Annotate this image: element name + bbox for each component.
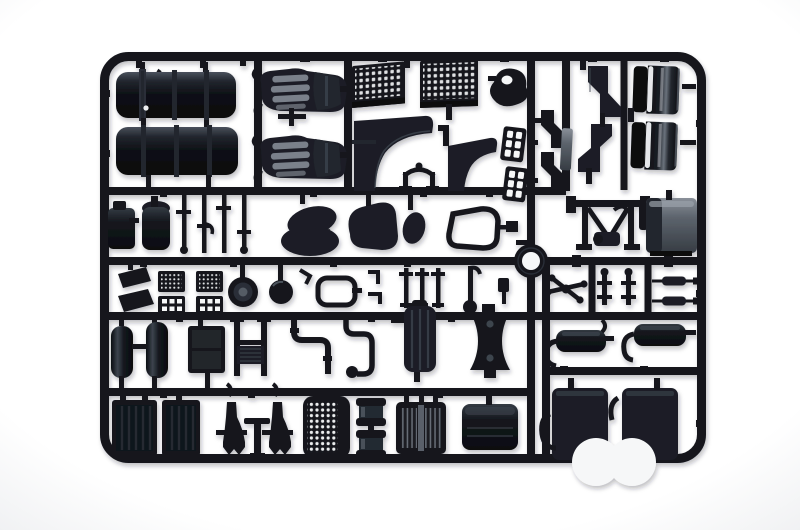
photo-canvas: { "scene": { "description": "Photograph … <box>0 0 800 530</box>
sprue-photo <box>0 0 800 530</box>
battery-box <box>639 190 697 256</box>
sprue-photo-svg <box>0 0 800 530</box>
radiator-core <box>396 395 446 454</box>
alignment-ring <box>514 244 548 278</box>
intercoolers <box>112 392 200 456</box>
perforated-basket <box>303 388 350 458</box>
